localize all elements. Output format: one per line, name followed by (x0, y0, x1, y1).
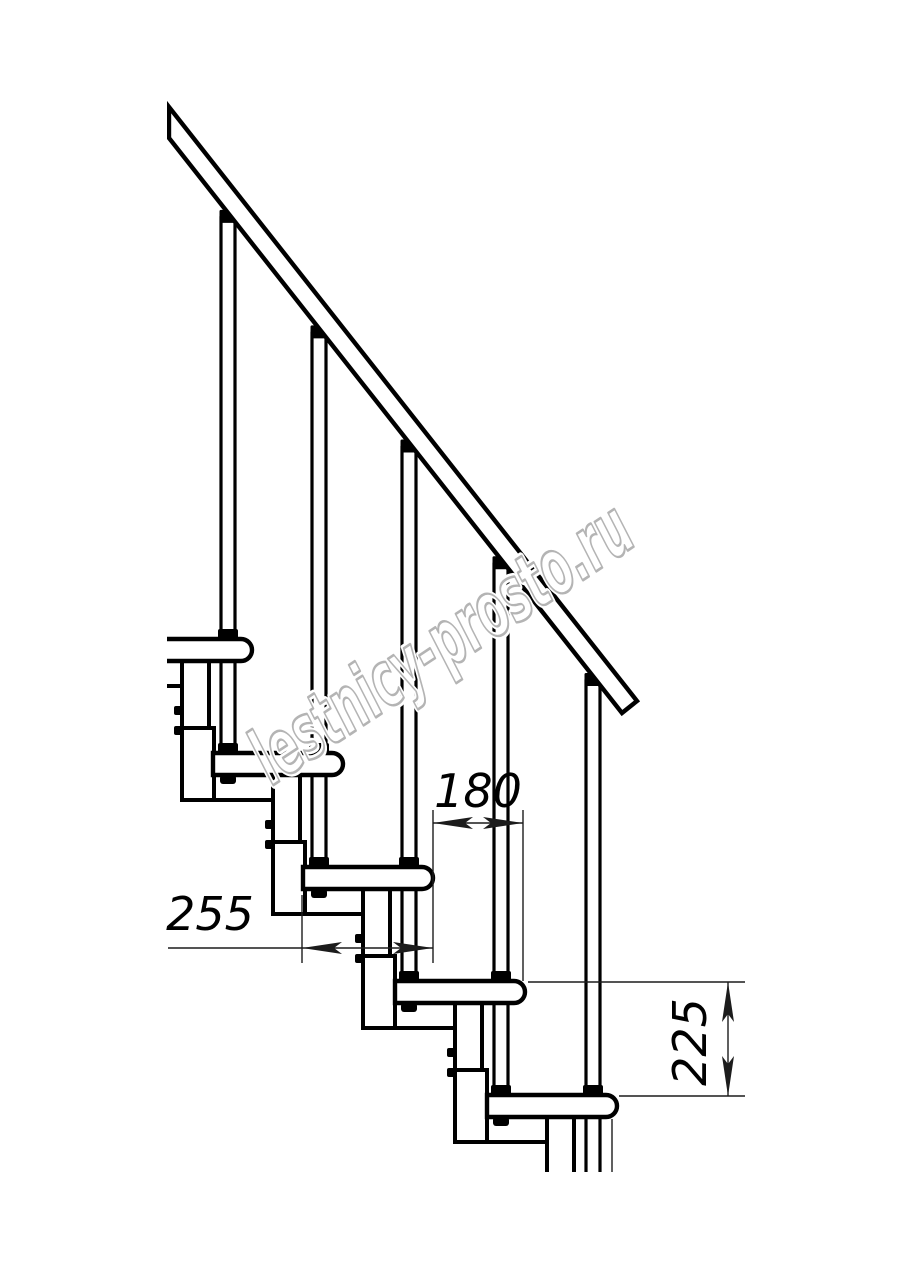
tread-5 (487, 1095, 617, 1117)
baluster-1-tread-collar (218, 629, 238, 639)
dimension-label-225: 225 (663, 998, 717, 1086)
baluster-3-under-tread-nut (401, 1003, 417, 1012)
baluster-4-landing-collar (491, 1085, 511, 1095)
support-module-1-column (182, 661, 209, 728)
baluster-2-under-tread-nut (311, 889, 327, 898)
module-4-bolt-1 (447, 1048, 455, 1057)
baluster-4-under-tread-nut (493, 1117, 509, 1126)
module-2-bolt-2 (265, 840, 273, 849)
baluster-3-tread-collar (399, 857, 419, 867)
support-module-3-column (363, 889, 390, 956)
module-3-bolt-1 (355, 934, 363, 943)
baluster-2-landing-collar (309, 857, 329, 867)
cutoff-mask-left (0, 0, 167, 1280)
module-1-bolt-2 (174, 726, 182, 735)
dimension-label-180: 180 (434, 764, 522, 818)
baluster-5-tread-collar (583, 1085, 603, 1095)
baluster-1-pipe (221, 218, 235, 753)
module-4-bolt-2 (447, 1068, 455, 1077)
support-module-3-lower-bracket (363, 956, 395, 1028)
baluster-1-under-tread-nut (220, 775, 236, 784)
module-3-bolt-2 (355, 954, 363, 963)
support-module-4-lower-bracket (455, 1070, 487, 1142)
module-1-bolt-1 (174, 706, 182, 715)
baluster-1-landing-collar (218, 743, 238, 753)
staircase-elevation-drawing: 180255225lestnicy-prosto.rulestnicy-pros… (0, 0, 914, 1280)
cutoff-mask-bottom (0, 1172, 914, 1280)
baluster-4-tread-collar (491, 971, 511, 981)
dimension-label-255: 255 (166, 887, 254, 941)
tread-4 (395, 981, 525, 1003)
baluster-2-pipe (312, 333, 326, 867)
baluster-3-landing-collar (399, 971, 419, 981)
module-2-bolt-1 (265, 820, 273, 829)
drawing-canvas: 180255225lestnicy-prosto.rulestnicy-pros… (0, 0, 914, 1280)
support-module-4-column (455, 1003, 482, 1070)
support-module-2-lower-bracket (273, 842, 305, 914)
dimension-225: 225 (528, 982, 745, 1096)
support-module-1-lower-bracket (182, 728, 214, 800)
tread-3 (303, 867, 433, 889)
